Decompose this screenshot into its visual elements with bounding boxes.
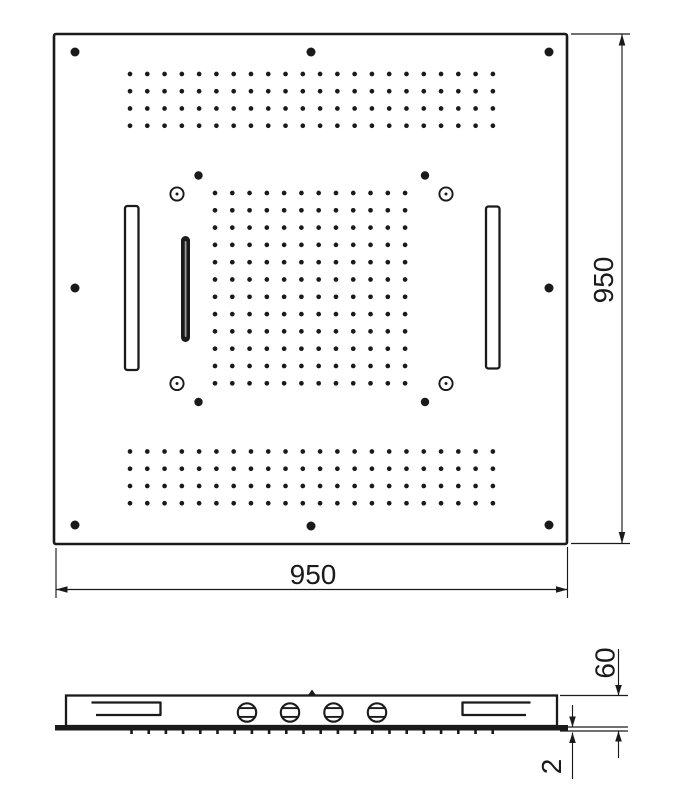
nozzle-dot (456, 72, 461, 77)
nozzle-dot (387, 484, 392, 489)
nozzle-tick (285, 730, 288, 735)
nozzle-dot (213, 277, 218, 282)
nozzle-dot (439, 449, 444, 454)
nozzle-dot (128, 123, 133, 128)
arrow-up-icon (569, 733, 576, 744)
nozzle-dot (318, 466, 323, 471)
nozzle-dot (197, 501, 202, 506)
nozzle-dot (230, 329, 235, 334)
nozzle-dot (197, 466, 202, 471)
nozzle-dot (230, 191, 235, 196)
nozzle-dot (299, 329, 304, 334)
nozzle-dot (385, 294, 390, 299)
nozzle-dot (316, 294, 321, 299)
technical-drawing-canvas: 950 950 (0, 0, 679, 800)
nozzle-dot (264, 381, 269, 386)
nozzle-dot (370, 484, 375, 489)
screw-ring-hole-center (176, 382, 179, 385)
nozzle-tick (268, 730, 271, 735)
nozzle-dot (385, 346, 390, 351)
nozzle-dot (162, 501, 167, 506)
nozzle-dot (334, 294, 339, 299)
nozzle-dot (264, 312, 269, 317)
nozzle-dot (145, 466, 150, 471)
nozzle-dot (334, 225, 339, 230)
nozzle-dot (404, 466, 409, 471)
nozzle-dot (368, 225, 373, 230)
nozzle-dot (318, 72, 323, 77)
nozzle-dot (247, 364, 252, 369)
nozzle-dot (249, 501, 254, 506)
nozzle-dot (370, 106, 375, 111)
nozzle-dot (197, 484, 202, 489)
screw-ring-hole-center (176, 193, 179, 196)
nozzle-dot (334, 260, 339, 265)
nozzle-dot (264, 243, 269, 248)
inner-hole (194, 171, 202, 179)
arrow-right-icon (556, 586, 568, 593)
nozzle-dot (283, 466, 288, 471)
nozzle-dot (421, 484, 426, 489)
nozzle-dot (387, 89, 392, 94)
nozzle-dot (247, 225, 252, 230)
nozzle-tick (130, 730, 133, 735)
nozzle-dot (145, 123, 150, 128)
nozzle-dot (214, 72, 219, 77)
nozzle-dot (213, 364, 218, 369)
nozzle-dot (299, 243, 304, 248)
nozzle-dot (316, 191, 321, 196)
nozzle-dot (439, 123, 444, 128)
mounting-hole (545, 48, 554, 57)
nozzle-tick (319, 730, 322, 735)
nozzle-dot (491, 449, 496, 454)
mounting-hole (545, 521, 554, 530)
nozzle-dot (352, 89, 357, 94)
nozzle-dot (128, 484, 133, 489)
nozzle-dot (335, 466, 340, 471)
nozzle-tick (354, 730, 357, 735)
thin-inner-slot-highlight (185, 241, 187, 337)
nozzle-dot (145, 106, 150, 111)
nozzle-dot (368, 329, 373, 334)
nozzle-dot (403, 277, 408, 282)
inner-hole (421, 171, 429, 179)
nozzle-dot (456, 501, 461, 506)
nozzle-tick (199, 730, 202, 735)
nozzle-dot (213, 381, 218, 386)
nozzle-tick (457, 730, 460, 735)
nozzle-dot (387, 123, 392, 128)
nozzle-dot (266, 449, 271, 454)
nozzle-dot (231, 106, 236, 111)
nozzle-dot (385, 381, 390, 386)
nozzle-dot (128, 449, 133, 454)
nozzle-dot (162, 72, 167, 77)
arrow-up-icon (615, 731, 622, 742)
nozzle-dot (282, 260, 287, 265)
nozzle-dot (473, 449, 478, 454)
nozzle-dot (473, 466, 478, 471)
nozzle-dot (352, 106, 357, 111)
nozzle-dot (370, 72, 375, 77)
inner-hole (194, 398, 202, 406)
nozzle-dot (404, 484, 409, 489)
nozzle-dot (370, 123, 375, 128)
nozzle-dot (334, 312, 339, 317)
nozzle-dot (299, 225, 304, 230)
nozzle-dot (473, 72, 478, 77)
nozzle-dot (282, 243, 287, 248)
nozzle-dot (491, 106, 496, 111)
nozzle-dot (404, 106, 409, 111)
nozzle-dot (335, 484, 340, 489)
valve-circle (238, 703, 256, 721)
nozzle-dot (249, 72, 254, 77)
nozzle-dot (214, 449, 219, 454)
nozzle-dot (179, 106, 184, 111)
nozzle-dot (162, 466, 167, 471)
nozzle-dot (247, 346, 252, 351)
nozzle-dot (403, 364, 408, 369)
nozzle-dot (335, 501, 340, 506)
nozzle-dot (491, 466, 496, 471)
nozzle-dot (197, 123, 202, 128)
nozzle-dot (213, 260, 218, 265)
nozzle-dot (299, 277, 304, 282)
nozzle-dot (351, 364, 356, 369)
nozzle-dot (300, 466, 305, 471)
arrow-down-icon (615, 685, 622, 696)
nozzle-dot (282, 329, 287, 334)
nozzle-dot (351, 346, 356, 351)
nozzle-dot (351, 191, 356, 196)
nozzle-dot (300, 449, 305, 454)
nozzle-dot (385, 277, 390, 282)
nozzle-tick (216, 730, 219, 735)
nozzle-dot (491, 484, 496, 489)
nozzle-dot (368, 191, 373, 196)
nozzle-dot (249, 123, 254, 128)
nozzle-dot (213, 312, 218, 317)
nozzle-dot (179, 72, 184, 77)
nozzle-dot (368, 277, 373, 282)
valve-circle (324, 703, 342, 721)
nozzle-dot (352, 72, 357, 77)
nozzle-dot (368, 364, 373, 369)
nozzle-dot (179, 484, 184, 489)
nozzle-dot (316, 243, 321, 248)
nozzle-dot (334, 364, 339, 369)
nozzle-dot (352, 501, 357, 506)
nozzle-dot (283, 449, 288, 454)
nozzle-tick (474, 730, 477, 735)
nozzle-dot (387, 501, 392, 506)
nozzle-dot (404, 89, 409, 94)
nozzle-dot (231, 72, 236, 77)
nozzle-dot (231, 484, 236, 489)
nozzle-dot (231, 123, 236, 128)
nozzle-dot (282, 294, 287, 299)
nozzle-dot (456, 449, 461, 454)
nozzle-dot (370, 501, 375, 506)
nozzle-dot (370, 89, 375, 94)
nozzle-dot (385, 260, 390, 265)
nozzle-tick (440, 730, 443, 735)
nozzle-dot (230, 208, 235, 213)
nozzle-dot (316, 260, 321, 265)
nozzle-dot (247, 260, 252, 265)
nozzle-dot (456, 466, 461, 471)
nozzle-dot (334, 346, 339, 351)
nozzle-tick (233, 730, 236, 735)
nozzle-dot (491, 89, 496, 94)
mounting-hole (307, 522, 316, 531)
nozzle-dot (316, 277, 321, 282)
nozzle-dot (439, 72, 444, 77)
nozzle-dot (145, 484, 150, 489)
nozzle-dot (299, 364, 304, 369)
nozzle-dot (230, 225, 235, 230)
nozzle-dot (351, 208, 356, 213)
nozzle-dot (283, 123, 288, 128)
nozzle-dot (368, 381, 373, 386)
valve-circle (368, 703, 386, 721)
nozzle-dot (264, 346, 269, 351)
nozzle-dot (351, 294, 356, 299)
nozzle-dot (214, 501, 219, 506)
nozzle-dot (318, 449, 323, 454)
nozzle-dot (318, 106, 323, 111)
nozzle-dot (162, 484, 167, 489)
nozzle-dot (249, 106, 254, 111)
screw-ring-hole-center (445, 193, 448, 196)
plate-thickness-label: 2 (536, 759, 567, 775)
mounting-hole (545, 284, 554, 293)
plan-width-label: 950 (290, 559, 337, 590)
plan-height-label: 950 (588, 257, 619, 304)
nozzle-dot (351, 225, 356, 230)
nozzle-dot (335, 123, 340, 128)
nozzle-dot (230, 243, 235, 248)
arrow-down-icon (619, 532, 626, 544)
nozzle-dot (351, 243, 356, 248)
nozzle-dot (439, 466, 444, 471)
nozzle-dot (214, 484, 219, 489)
nozzle-dot (128, 72, 133, 77)
nozzle-dot (387, 72, 392, 77)
nozzle-dot (318, 484, 323, 489)
nozzle-dot (421, 501, 426, 506)
nozzle-dot (300, 484, 305, 489)
nozzle-dot (368, 260, 373, 265)
nozzle-dot (214, 89, 219, 94)
nozzle-dot (316, 346, 321, 351)
nozzle-dot (473, 123, 478, 128)
nozzle-dot (266, 72, 271, 77)
nozzle-tick (337, 730, 340, 735)
nozzle-tick (423, 730, 426, 735)
nozzle-tick (182, 730, 185, 735)
nozzle-dot (368, 312, 373, 317)
nozzle-dot (179, 466, 184, 471)
nozzle-dot (282, 381, 287, 386)
nozzle-dot (385, 312, 390, 317)
nozzle-dot (334, 243, 339, 248)
nozzle-dot (264, 294, 269, 299)
nozzle-dot (300, 123, 305, 128)
nozzle-dot (368, 294, 373, 299)
nozzle-dot (179, 89, 184, 94)
nozzle-dot (491, 72, 496, 77)
nozzle-dot (197, 89, 202, 94)
nozzle-dot (368, 346, 373, 351)
nozzle-dot (264, 277, 269, 282)
nozzle-dot (282, 208, 287, 213)
nozzle-dot (318, 501, 323, 506)
nozzle-dot (335, 72, 340, 77)
nozzle-dot (316, 208, 321, 213)
nozzle-dot (266, 106, 271, 111)
nozzle-dot (351, 381, 356, 386)
nozzle-dot (282, 225, 287, 230)
nozzle-dot (213, 329, 218, 334)
nozzle-dot (145, 89, 150, 94)
nozzle-dot (283, 106, 288, 111)
nozzle-dot (282, 364, 287, 369)
mounting-hole (307, 48, 316, 57)
nozzle-dot (128, 466, 133, 471)
nozzle-dot (213, 294, 218, 299)
nozzle-dot (456, 89, 461, 94)
nozzle-dot (264, 208, 269, 213)
nozzle-dot (473, 106, 478, 111)
nozzle-dot (213, 191, 218, 196)
mounting-hole (71, 48, 80, 57)
nozzle-tick (371, 730, 374, 735)
nozzle-tick (165, 730, 168, 735)
nozzle-dot (299, 294, 304, 299)
valve-circle (281, 703, 299, 721)
nozzle-dot (421, 449, 426, 454)
nozzle-dot (249, 466, 254, 471)
nozzle-dot (300, 89, 305, 94)
nozzle-dot (404, 449, 409, 454)
nozzle-dot (403, 381, 408, 386)
nozzle-dot (439, 106, 444, 111)
nozzle-tick (491, 730, 494, 735)
left-spray-slot (125, 206, 139, 370)
side-view (55, 690, 568, 735)
nozzle-dot (403, 243, 408, 248)
nozzle-dot (145, 501, 150, 506)
nozzle-dot (128, 89, 133, 94)
nozzle-dot (318, 123, 323, 128)
nozzle-dot (351, 312, 356, 317)
nozzle-dot (266, 89, 271, 94)
nozzle-dot (421, 72, 426, 77)
nozzle-dot (335, 106, 340, 111)
nozzle-dot (283, 501, 288, 506)
profile-height-label: 60 (590, 647, 621, 678)
nozzle-dot (231, 449, 236, 454)
nozzle-dot (247, 277, 252, 282)
nozzle-dot (128, 106, 133, 111)
nozzle-dot (316, 225, 321, 230)
nozzle-dot (266, 466, 271, 471)
nozzle-dot (334, 381, 339, 386)
nozzle-tick (147, 730, 150, 735)
nozzle-dot (213, 346, 218, 351)
nozzle-dot (282, 346, 287, 351)
nozzle-dot (283, 72, 288, 77)
mounting-hole (71, 521, 80, 530)
nozzle-dot (370, 449, 375, 454)
nozzle-dot (231, 89, 236, 94)
nozzle-dot (370, 466, 375, 471)
nozzle-dot (283, 484, 288, 489)
shower-panel-drawing: 950 950 (0, 0, 679, 800)
nozzle-dot (387, 449, 392, 454)
nozzle-dot (213, 225, 218, 230)
nozzle-dot (473, 89, 478, 94)
nozzle-dot (214, 123, 219, 128)
nozzle-dot (299, 191, 304, 196)
nozzle-dot (352, 466, 357, 471)
nozzle-dot (266, 501, 271, 506)
inner-hole (421, 398, 429, 406)
nozzle-dot (162, 106, 167, 111)
nozzle-dot (230, 381, 235, 386)
nozzle-dot (421, 123, 426, 128)
nozzle-dot (213, 243, 218, 248)
nozzle-dot (249, 484, 254, 489)
nozzle-dot (230, 260, 235, 265)
nozzle-dot (421, 89, 426, 94)
inlet-nub (308, 690, 317, 697)
arrow-left-icon (56, 586, 68, 593)
nozzle-dot (352, 484, 357, 489)
nozzle-dot (334, 277, 339, 282)
nozzle-dot (213, 208, 218, 213)
arrow-down-icon (569, 717, 576, 728)
nozzle-dot (145, 72, 150, 77)
nozzle-dot (387, 106, 392, 111)
nozzle-dot (316, 364, 321, 369)
nozzle-dot (247, 208, 252, 213)
nozzle-dot (404, 123, 409, 128)
nozzle-dot (404, 72, 409, 77)
nozzle-dot (385, 225, 390, 230)
nozzle-dot (230, 277, 235, 282)
nozzle-dot (145, 449, 150, 454)
nozzle-dot (334, 191, 339, 196)
nozzle-dot (214, 466, 219, 471)
plan-view (54, 34, 567, 544)
nozzle-dot (179, 123, 184, 128)
nozzle-dot (282, 191, 287, 196)
nozzle-dot (335, 89, 340, 94)
nozzle-dot (403, 191, 408, 196)
nozzle-dot (318, 89, 323, 94)
nozzle-dot (439, 501, 444, 506)
nozzle-dot (456, 106, 461, 111)
nozzle-dot (351, 277, 356, 282)
nozzle-dot (249, 89, 254, 94)
nozzle-dot (473, 484, 478, 489)
nozzle-dot (316, 381, 321, 386)
nozzle-dot (300, 106, 305, 111)
